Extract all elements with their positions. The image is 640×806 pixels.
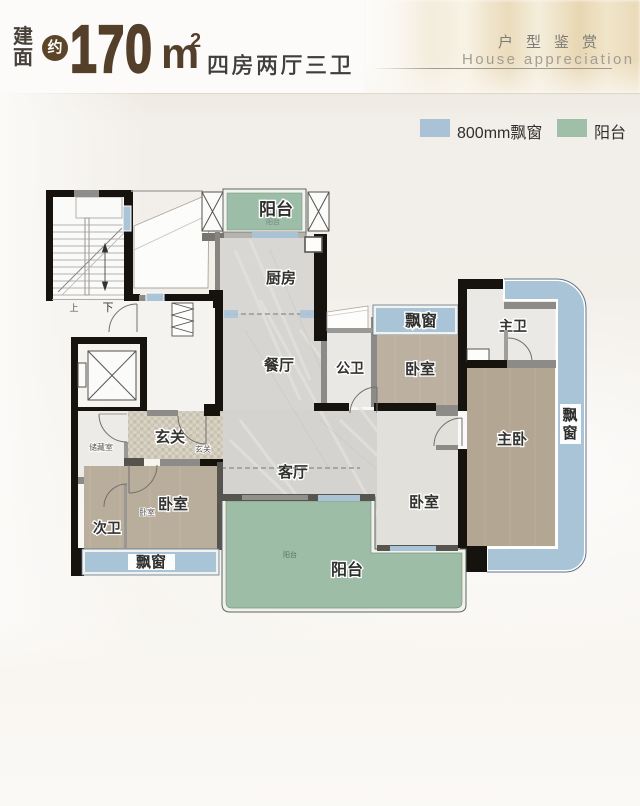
svg-text:阳台: 阳台 bbox=[259, 199, 293, 219]
svg-text:阳台: 阳台 bbox=[266, 217, 280, 226]
svg-text:阳台: 阳台 bbox=[331, 560, 363, 579]
svg-text:飘窗: 飘窗 bbox=[136, 553, 166, 571]
svg-text:餐厅: 餐厅 bbox=[264, 356, 294, 374]
svg-text:卧室: 卧室 bbox=[409, 493, 439, 511]
svg-text:上: 上 bbox=[69, 303, 78, 313]
svg-text:主卧: 主卧 bbox=[497, 430, 527, 448]
svg-text:公卫: 公卫 bbox=[336, 360, 364, 376]
svg-text:次卫: 次卫 bbox=[93, 520, 121, 536]
svg-text:阳台: 阳台 bbox=[283, 550, 297, 559]
svg-text:卧室: 卧室 bbox=[139, 507, 155, 517]
svg-text:卧室: 卧室 bbox=[405, 360, 435, 378]
svg-text:飘窗: 飘窗 bbox=[405, 311, 437, 330]
svg-text:玄关: 玄关 bbox=[155, 428, 185, 446]
svg-text:下: 下 bbox=[103, 302, 114, 314]
svg-text:窗: 窗 bbox=[562, 424, 577, 442]
svg-text:飘: 飘 bbox=[562, 407, 577, 424]
svg-text:厨房: 厨房 bbox=[266, 269, 296, 287]
svg-text:主卫: 主卫 bbox=[499, 318, 527, 334]
svg-text:客厅: 客厅 bbox=[277, 463, 308, 481]
svg-text:玄关: 玄关 bbox=[195, 444, 211, 454]
svg-text:储藏室: 储藏室 bbox=[89, 442, 113, 452]
svg-text:卧室: 卧室 bbox=[158, 495, 188, 513]
